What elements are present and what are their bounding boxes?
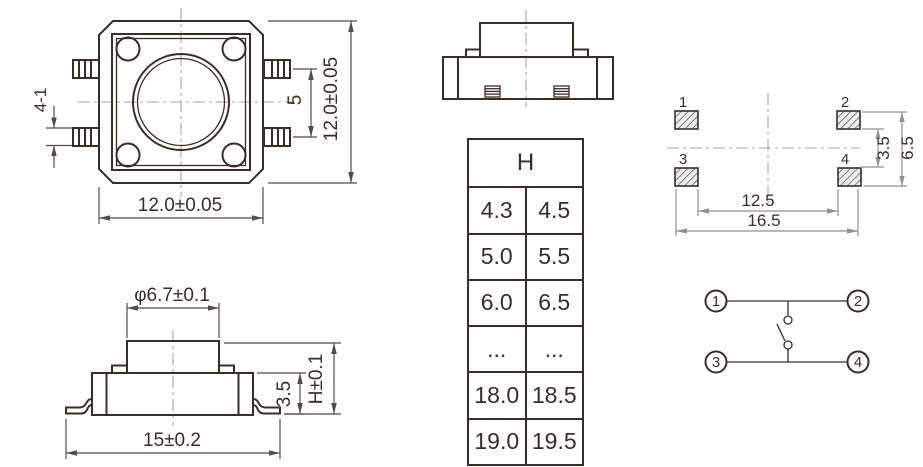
table-cell: 6.0 [468,280,526,326]
lead-top-left [73,60,99,78]
pad-2-label: 2 [841,94,849,111]
plunger-tab-right [219,366,234,374]
table-cell: 18.5 [526,372,584,418]
body-height-label: 12.0±0.05 [321,57,342,141]
lead-span-label: 15±0.2 [143,430,201,451]
table-cell: 5.5 [526,234,584,280]
pin-3-label: 3 [712,354,720,371]
table-cell: ... [468,326,526,372]
technical-drawing-sheet: 4-1 5 12.0±0.05 12.0±0.05 [0,0,923,467]
table-cell: 6.5 [526,280,584,326]
plunger-tab-left [112,366,127,374]
total-height-label: H±0.1 [306,354,327,405]
body [443,57,613,99]
plunger-tab-left [466,50,480,58]
pin-1-label: 1 [712,293,720,310]
lead-top-right [264,60,290,78]
circuit-schematic: 1 2 3 4 [706,291,869,373]
pin-2-label: 2 [854,293,862,310]
table-cell: 4.5 [526,187,584,233]
body-height-label: 3.5 [274,381,295,407]
switch-lever [777,324,785,341]
body-width-label: 12.0±0.05 [138,195,222,216]
dimension-body-height: 12.0±0.05 [268,21,357,183]
pin-4-label: 4 [854,354,862,371]
table-cell: 18.0 [468,372,526,418]
pad-3-label: 3 [679,151,687,168]
front-view: φ6.7±0.1 3.5 H±0.1 15±0.2 [66,285,341,459]
foot-left [485,86,500,97]
pad-3 [675,168,698,186]
gullwing-lead-left [66,399,92,414]
dimension-pad-row-inner: 3.5 [862,129,893,167]
pad-1 [675,111,698,129]
table-cell: 4.3 [468,187,526,233]
pad-col-outer-label: 16.5 [747,211,780,230]
pad-layout: 1 2 3 4 3.5 6.5 12.5 [667,93,917,236]
lead-size-label: 4-1 [31,88,50,113]
lead-bottom-left [73,128,99,146]
pad-col-inner-label: 12.5 [741,191,774,210]
dimension-lead-pitch: 5 [285,69,317,137]
pad-row-outer-label: 6.5 [898,136,917,160]
table-cell: ... [526,326,584,372]
pad-row-inner-label: 3.5 [874,136,893,160]
lead-pitch-label: 5 [285,95,306,106]
height-options-table: H 4.3 4.5 5.0 5.5 6.0 6.5 ... ... 18.0 1… [467,138,584,466]
plunger-tab-right [573,50,588,58]
side-view [443,10,613,107]
corner-hole [223,38,246,61]
dimension-lead-size: 4-1 [31,88,72,168]
corner-hole [117,38,140,61]
pad-2 [837,111,860,129]
knob-diameter-label: φ6.7±0.1 [134,285,210,306]
lead-bottom-right [264,128,290,146]
table-cell: 19.5 [526,419,584,465]
table-cell: 5.0 [468,234,526,280]
pad-4 [838,168,861,186]
table-header: H [468,139,583,187]
top-view: 4-1 5 12.0±0.05 12.0±0.05 [31,8,357,224]
pad-1-label: 1 [679,94,687,111]
foot-right [554,86,569,97]
pad-4-label: 4 [841,151,849,168]
contact-bottom [784,341,792,349]
contact-top [784,316,792,324]
corner-hole [117,144,140,167]
corner-hole [223,144,246,167]
table-cell: 19.0 [468,419,526,465]
drawing-canvas: 4-1 5 12.0±0.05 12.0±0.05 [0,0,923,467]
